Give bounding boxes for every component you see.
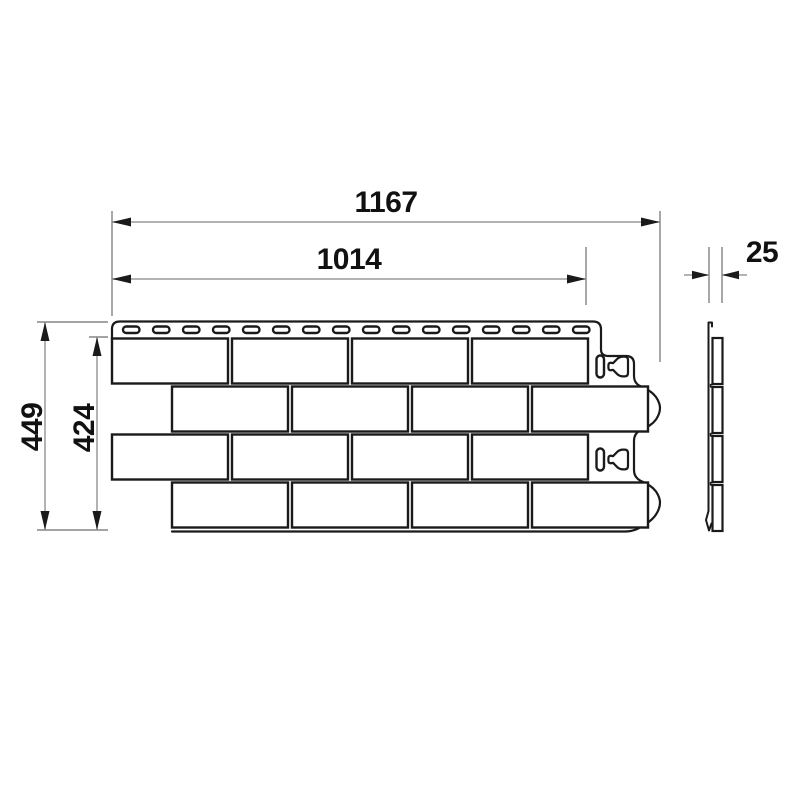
lock-keyhole-bottom — [597, 449, 629, 471]
nail-slot-icon — [153, 327, 170, 334]
drawing-canvas: 1167 1014 25 449 424 — [0, 0, 800, 800]
arrowhead-bottom — [93, 511, 102, 530]
brick — [352, 435, 468, 480]
brick — [172, 483, 288, 528]
brick — [232, 435, 348, 480]
dim-value-overall-width: 1167 — [354, 186, 417, 219]
nail-slot-icon — [123, 327, 140, 334]
arrowhead-left — [112, 275, 131, 284]
arrowhead-right — [722, 271, 739, 279]
arrowhead-left — [692, 271, 709, 279]
dim-value-working-width: 1014 — [317, 243, 383, 276]
panel-front-view — [112, 322, 660, 532]
brick — [472, 435, 588, 480]
nail-slot-icon — [273, 327, 290, 334]
nail-slots — [123, 327, 590, 334]
brick — [352, 339, 468, 384]
dim-working-width: 1014 — [112, 243, 586, 284]
panel-technical-drawing: 1167 1014 25 449 424 — [0, 0, 800, 800]
nail-slot-icon — [453, 327, 470, 334]
dim-overall-height: 449 — [16, 322, 50, 530]
dim-overall-width: 1167 — [112, 186, 660, 227]
arrowhead-right — [641, 218, 660, 227]
brick — [112, 339, 228, 384]
nail-slot-icon — [393, 327, 410, 334]
lock-funnel-icon — [608, 450, 628, 470]
profile-segment — [713, 338, 723, 384]
dim-value-thickness: 25 — [746, 236, 778, 269]
lock-keyhole-top — [597, 356, 629, 378]
brick — [292, 387, 408, 432]
profile-segment — [713, 436, 723, 482]
brick — [532, 483, 648, 528]
nail-slot-icon — [213, 327, 230, 334]
profile-segment — [713, 485, 723, 531]
lock-funnel-icon — [608, 357, 628, 377]
dim-value-working-height: 424 — [68, 403, 101, 452]
profile-row-segments — [713, 338, 723, 531]
arrowhead-left — [112, 218, 131, 227]
nail-slot-icon — [363, 327, 380, 334]
brick — [532, 387, 648, 432]
brick — [412, 387, 528, 432]
brick — [232, 339, 348, 384]
profile-segment — [713, 387, 723, 433]
nail-slot-icon — [483, 327, 500, 334]
nail-slot-icon — [513, 327, 530, 334]
dim-working-height: 424 — [68, 337, 102, 530]
profile-back-line — [706, 323, 712, 531]
nail-slot-icon — [333, 327, 350, 334]
arrowhead-right — [567, 275, 586, 284]
brick — [472, 339, 588, 384]
arrowhead-top — [41, 322, 50, 341]
dim-value-overall-height: 449 — [16, 403, 49, 452]
nail-slot-icon — [243, 327, 260, 334]
nail-slot-icon — [423, 327, 440, 334]
arrowhead-top — [93, 337, 102, 356]
brick — [292, 483, 408, 528]
brick — [412, 483, 528, 528]
brick — [112, 435, 228, 480]
lock-slot-icon — [597, 449, 605, 471]
nail-slot-icon — [543, 327, 560, 334]
dim-thickness: 25 — [684, 236, 778, 279]
brick-rows — [112, 339, 648, 528]
arrowhead-bottom — [41, 511, 50, 530]
nail-slot-icon — [183, 327, 200, 334]
panel-side-profile — [706, 323, 723, 532]
nail-slot-icon — [573, 327, 590, 334]
nail-slot-icon — [303, 327, 320, 334]
lock-slot-icon — [597, 356, 605, 378]
brick — [172, 387, 288, 432]
